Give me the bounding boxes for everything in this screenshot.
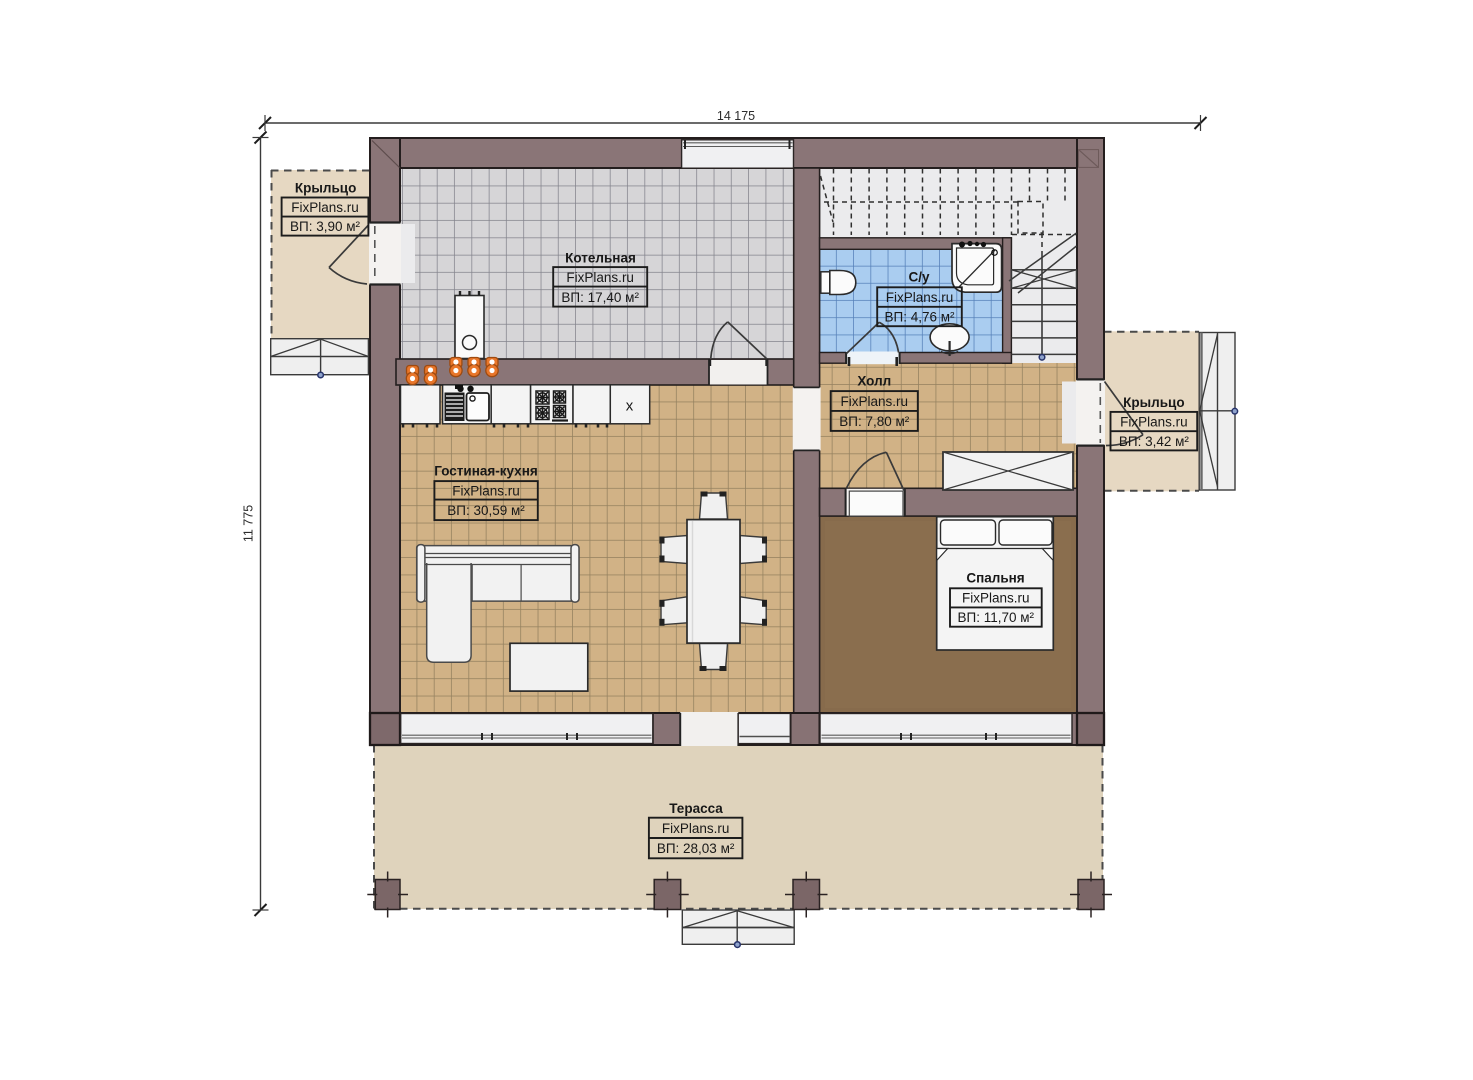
svg-text:FixPlans.ru: FixPlans.ru <box>841 394 909 409</box>
svg-text:ВП: 7,80 м²: ВП: 7,80 м² <box>839 414 910 429</box>
svg-text:Терасса: Терасса <box>669 801 723 816</box>
svg-text:FixPlans.ru: FixPlans.ru <box>566 270 634 285</box>
svg-text:ВП: 17,40 м²: ВП: 17,40 м² <box>561 290 639 305</box>
svg-text:x: x <box>626 398 634 415</box>
svg-text:ВП: 11,70 м²: ВП: 11,70 м² <box>958 610 1035 625</box>
svg-text:FixPlans.ru: FixPlans.ru <box>662 821 730 836</box>
svg-text:Спальня: Спальня <box>966 570 1024 585</box>
svg-text:14 175: 14 175 <box>717 109 755 123</box>
svg-text:Котельная: Котельная <box>565 251 636 266</box>
svg-text:FixPlans.ru: FixPlans.ru <box>886 290 954 305</box>
svg-text:11 775: 11 775 <box>242 505 256 542</box>
svg-text:Гостиная-кухня: Гостиная-кухня <box>434 464 537 479</box>
svg-text:ВП: 3,90 м²: ВП: 3,90 м² <box>290 219 361 234</box>
svg-text:FixPlans.ru: FixPlans.ru <box>962 591 1030 606</box>
svg-text:FixPlans.ru: FixPlans.ru <box>1120 414 1188 429</box>
svg-text:С/у: С/у <box>908 270 930 285</box>
svg-text:Крыльцо: Крыльцо <box>295 181 356 196</box>
svg-text:ВП: 30,59 м²: ВП: 30,59 м² <box>447 503 525 518</box>
svg-text:ВП: 28,03 м²: ВП: 28,03 м² <box>657 841 735 856</box>
svg-text:FixPlans.ru: FixPlans.ru <box>452 483 520 498</box>
svg-text:ВП: 4,76 м²: ВП: 4,76 м² <box>884 310 955 325</box>
svg-text:Крыльцо: Крыльцо <box>1123 395 1184 410</box>
svg-text:ВП: 3,42 м²: ВП: 3,42 м² <box>1119 434 1190 449</box>
svg-text:Холл: Холл <box>857 373 891 388</box>
svg-text:FixPlans.ru: FixPlans.ru <box>291 200 359 215</box>
